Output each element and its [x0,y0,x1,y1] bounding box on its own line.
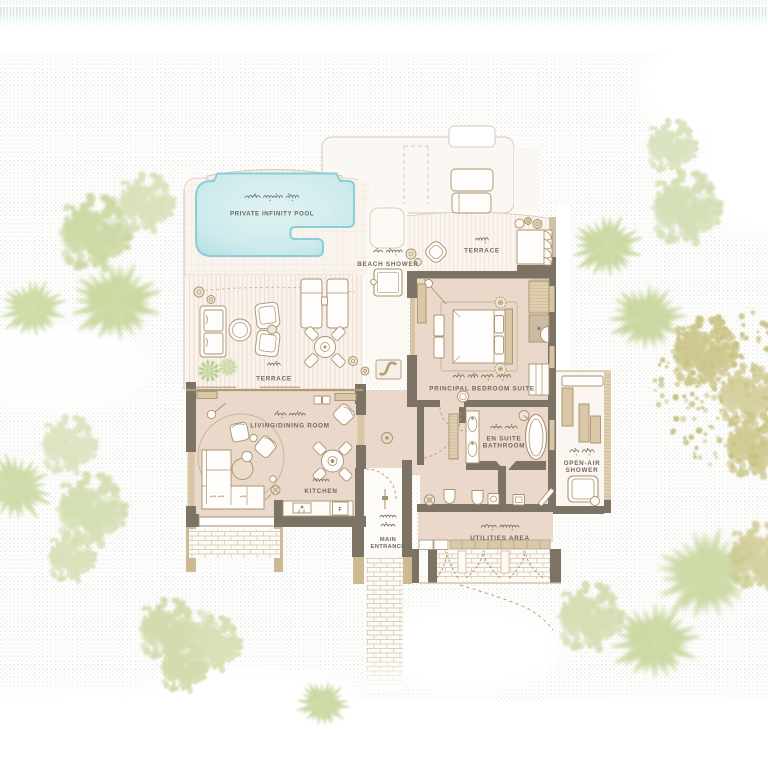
svg-text:OPEN-AIR: OPEN-AIR [564,460,601,467]
svg-text:BATHROOM: BATHROOM [483,443,526,450]
svg-text:PRIVATE INFINITY POOL: PRIVATE INFINITY POOL [230,211,314,218]
svg-text:MAIN: MAIN [380,537,396,543]
svg-text:TERRACE: TERRACE [464,248,500,255]
svg-text:EN SUITE: EN SUITE [486,436,521,443]
svg-text:PRINCIPAL BEDROOM SUITE: PRINCIPAL BEDROOM SUITE [429,386,535,393]
svg-text:TERRACE: TERRACE [256,376,292,383]
svg-text:KITCHEN: KITCHEN [304,488,337,495]
svg-text:LIVING/DINING ROOM: LIVING/DINING ROOM [250,423,330,430]
svg-text:F: F [338,507,341,513]
svg-text:ENTRANCE: ENTRANCE [370,544,405,550]
svg-text:UTILITIES AREA: UTILITIES AREA [470,535,530,542]
svg-text:SHOWER: SHOWER [566,467,599,474]
svg-text:BEACH SHOWER: BEACH SHOWER [357,261,418,268]
